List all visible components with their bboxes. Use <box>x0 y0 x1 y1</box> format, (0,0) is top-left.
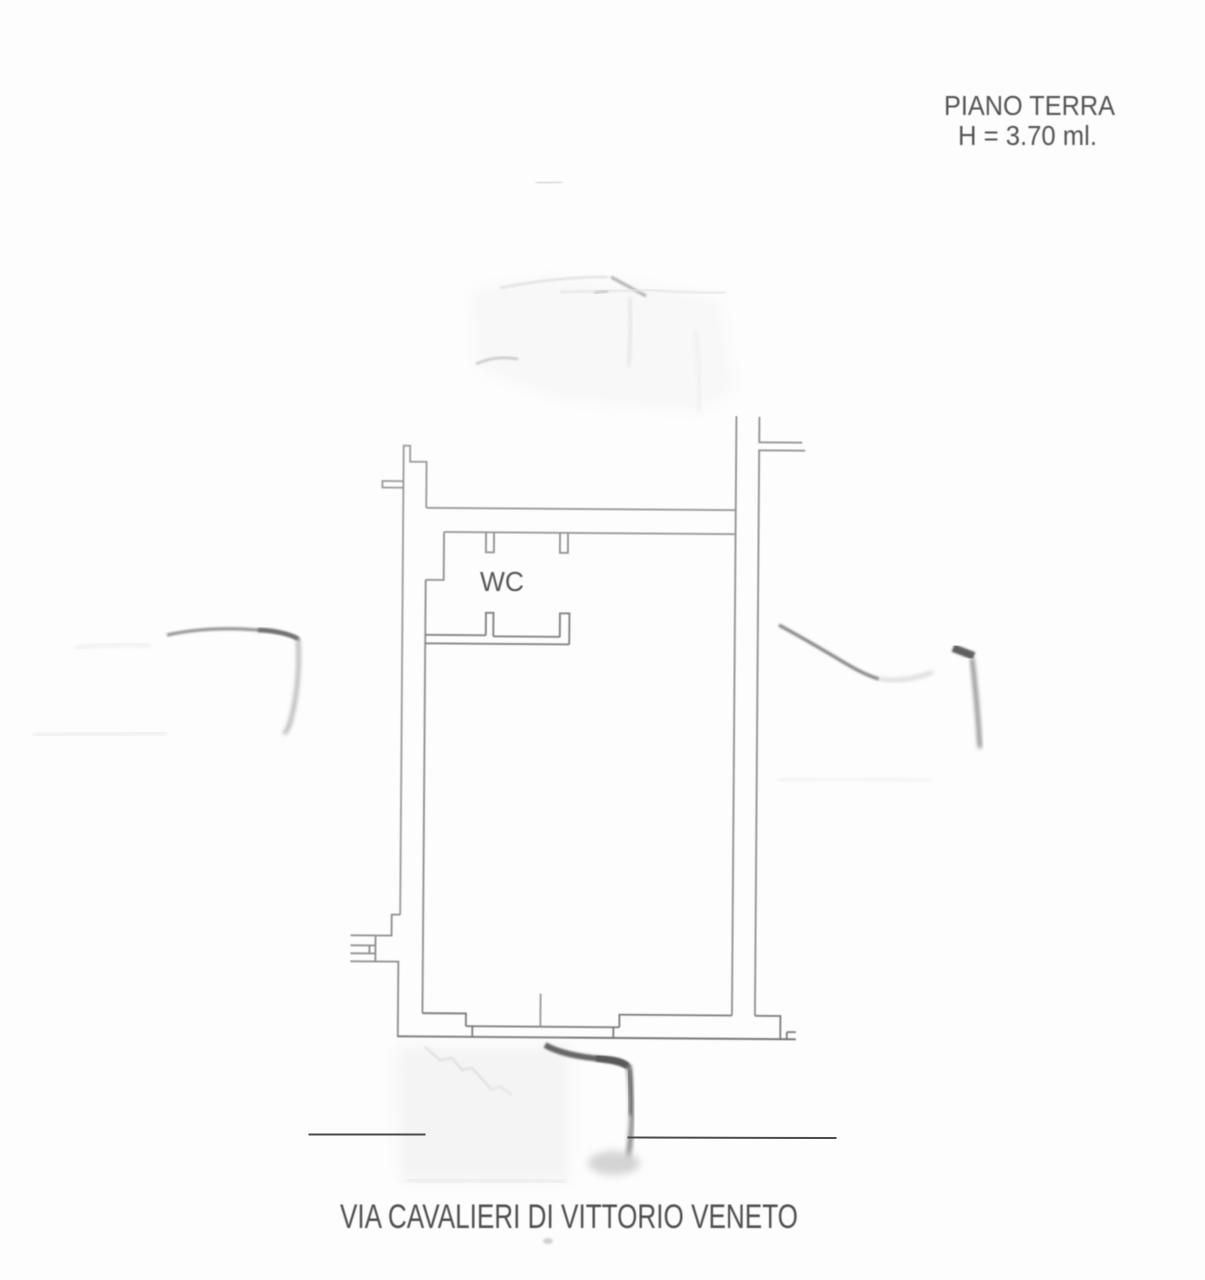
svg-text:VIA CAVALIERI DI VITTORIO VENE: VIA CAVALIERI DI VITTORIO VENETO <box>340 1198 798 1236</box>
svg-text:WC: WC <box>480 566 524 597</box>
svg-text:PIANO TERRA: PIANO TERRA <box>944 90 1115 121</box>
svg-text:H = 3.70 ml.: H = 3.70 ml. <box>958 120 1097 151</box>
